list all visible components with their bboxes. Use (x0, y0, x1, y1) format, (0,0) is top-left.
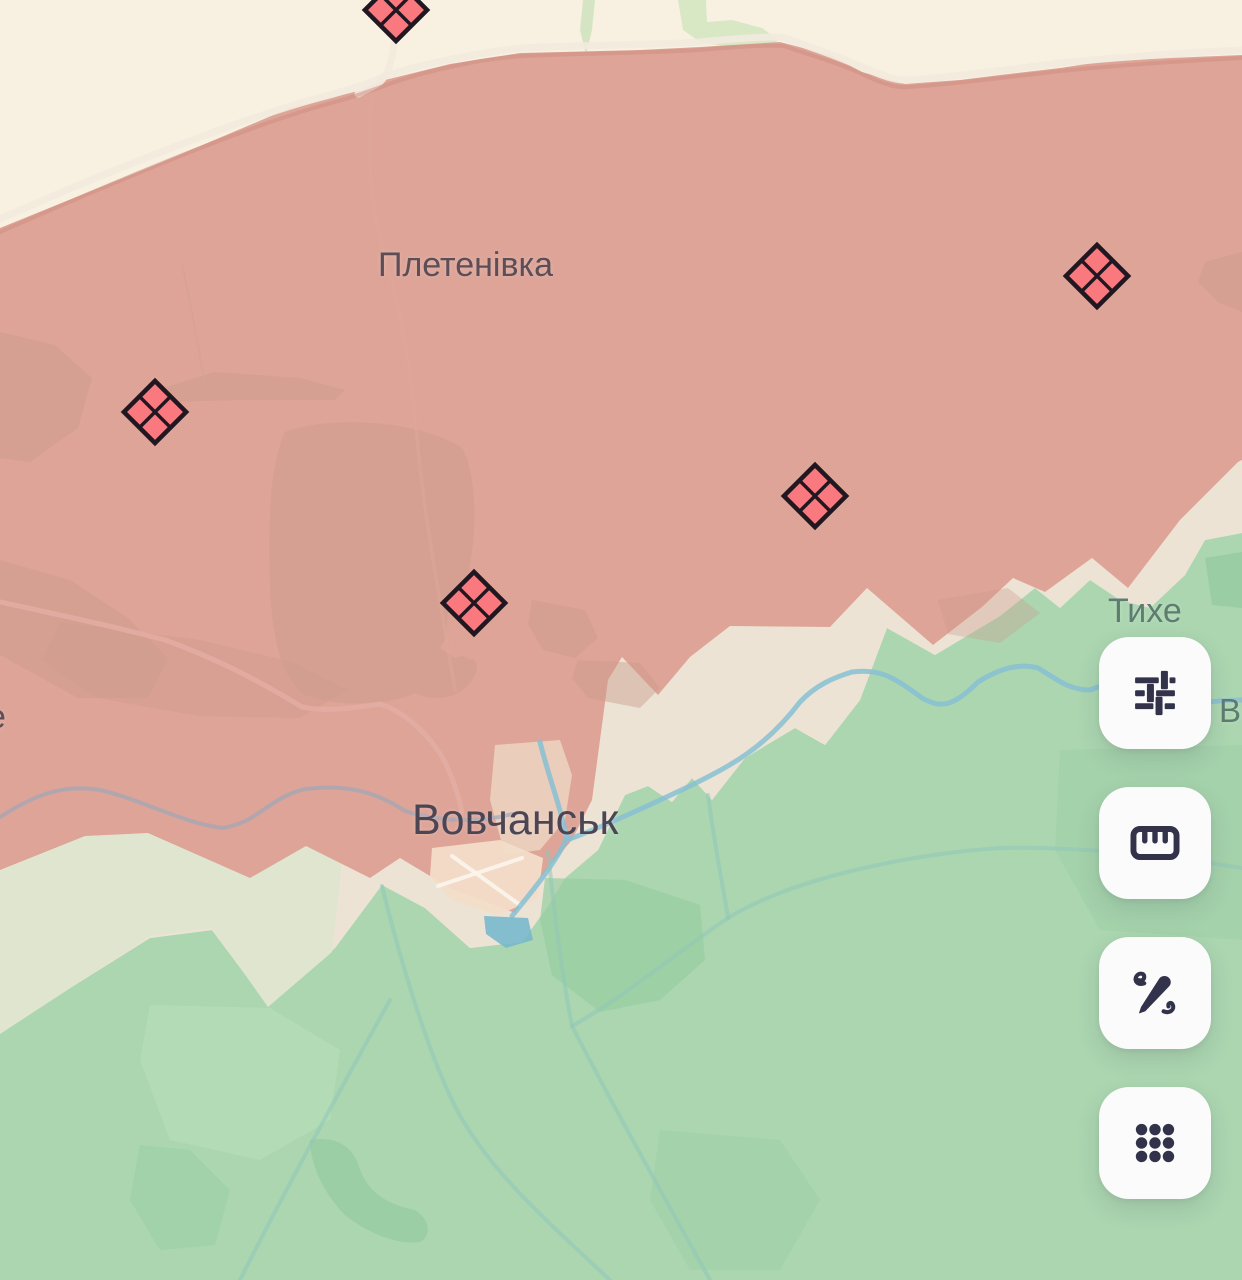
dots-grid-icon (1127, 1115, 1183, 1171)
more-tools-button[interactable] (1099, 1087, 1211, 1199)
pen-scribble-icon (1127, 965, 1183, 1021)
draw-button[interactable] (1099, 937, 1211, 1049)
measure-button[interactable] (1099, 787, 1211, 899)
forest-patch (269, 422, 477, 703)
map-canvas[interactable] (0, 0, 1242, 1280)
map-layers-filter-button[interactable] (1099, 637, 1211, 749)
map-screen: Плетенівка Вовчанськ Тихе е Во (0, 0, 1242, 1280)
ruler-icon (1127, 815, 1183, 871)
sliders-icon (1127, 665, 1183, 721)
